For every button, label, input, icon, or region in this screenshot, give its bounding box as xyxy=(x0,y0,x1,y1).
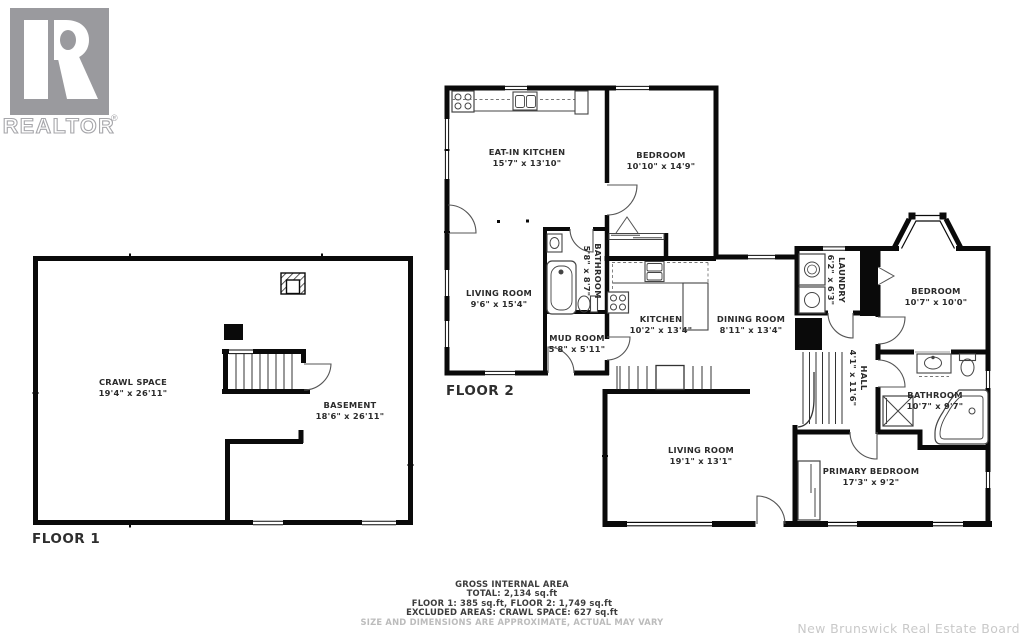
realtor-logo-text: REALTOR xyxy=(3,114,115,138)
room-dims: 8'11" x 13'4" xyxy=(717,325,785,336)
floor1-title: FLOOR 1 xyxy=(32,531,100,547)
room-dims: 19'1" x 13'1" xyxy=(668,456,734,467)
eat-in-kitchen-fixtures xyxy=(452,91,588,114)
room-name: BASEMENT xyxy=(316,400,385,411)
room-name: BATHROOM xyxy=(592,243,603,298)
room-name: CRAWL SPACE xyxy=(99,377,168,388)
room-dims: 10'7" x 9'7" xyxy=(907,401,964,412)
room-dims: 4'1" x 11'6" xyxy=(847,350,858,407)
floor2-title: FLOOR 2 xyxy=(446,383,514,399)
room-name: DINING ROOM xyxy=(717,314,785,325)
stairs-main xyxy=(617,366,711,390)
room-name: LAUNDRY xyxy=(836,255,847,306)
registered-mark: ® xyxy=(111,113,118,123)
room-name: KITCHEN xyxy=(630,314,693,325)
room-label-eat-in-kitchen: EAT-IN KITCHEN 15'7" x 13'10" xyxy=(489,147,566,169)
room-name: BEDROOM xyxy=(905,286,968,297)
room-name: MUD ROOM xyxy=(549,333,606,344)
realtor-logo: REALTOR ® xyxy=(0,0,130,145)
room-name: BEDROOM xyxy=(627,150,696,161)
floor1-plan xyxy=(33,254,414,528)
room-label-bedroom-top: BEDROOM 10'10" x 14'9" xyxy=(627,150,696,172)
room-dims: 17'3" x 9'2" xyxy=(823,477,919,488)
room-label-bathroom-right: BATHROOM 10'7" x 9'7" xyxy=(907,390,964,412)
room-dims: 6'2" x 6'3" xyxy=(825,255,836,306)
room-label-crawl-space: CRAWL SPACE 19'4" x 26'11" xyxy=(99,377,168,399)
area-summary: GROSS INTERNAL AREA TOTAL: 2,134 sq.ft F… xyxy=(0,580,1024,627)
room-label-hall: HALL 4'1" x 11'6" xyxy=(847,350,869,407)
room-dims: 9'6" x 15'4" xyxy=(466,299,532,310)
room-name: LIVING ROOM xyxy=(466,288,532,299)
room-label-basement: BASEMENT 18'6" x 26'11" xyxy=(316,400,385,422)
room-dims: 10'7" x 10'0" xyxy=(905,297,968,308)
room-name: EAT-IN KITCHEN xyxy=(489,147,566,158)
room-dims: 18'6" x 26'11" xyxy=(316,411,385,422)
stairs-hall xyxy=(798,352,842,427)
room-label-mud-room: MUD ROOM 5'8" x 5'11" xyxy=(549,333,606,355)
room-label-kitchen: KITCHEN 10'2" x 13'4" xyxy=(630,314,693,336)
floorplan-page: REALTOR ® CRAWL SPACE 19'4" x 26'11" BAS… xyxy=(0,0,1024,639)
room-label-primary-bedroom: PRIMARY BEDROOM 17'3" x 9'2" xyxy=(823,466,919,488)
room-dims: 19'4" x 26'11" xyxy=(99,388,168,399)
room-dims: 10'2" x 13'4" xyxy=(630,325,693,336)
room-dims: 5'8" x 8'7" xyxy=(581,243,592,298)
room-name: HALL xyxy=(858,350,869,407)
room-dims: 10'10" x 14'9" xyxy=(627,161,696,172)
room-label-dining-room: DINING ROOM 8'11" x 13'4" xyxy=(717,314,785,336)
room-dims: 5'8" x 5'11" xyxy=(549,344,606,355)
room-label-bathroom-upper: BATHROOM 5'8" x 8'7" xyxy=(581,243,603,298)
board-watermark: New Brunswick Real Estate Board xyxy=(797,621,1020,636)
room-label-laundry: LAUNDRY 6'2" x 6'3" xyxy=(825,255,847,306)
room-name: PRIMARY BEDROOM xyxy=(823,466,919,477)
room-dims: 15'7" x 13'10" xyxy=(489,158,566,169)
room-name: LIVING ROOM xyxy=(668,445,734,456)
room-name: BATHROOM xyxy=(907,390,964,401)
room-label-living-room-main: LIVING ROOM 19'1" x 13'1" xyxy=(668,445,734,467)
laundry-fixtures xyxy=(799,254,825,313)
room-label-bedroom-right: BEDROOM 10'7" x 10'0" xyxy=(905,286,968,308)
room-label-living-room-upper: LIVING ROOM 9'6" x 15'4" xyxy=(466,288,532,310)
floorplan-drawing xyxy=(0,0,1024,639)
